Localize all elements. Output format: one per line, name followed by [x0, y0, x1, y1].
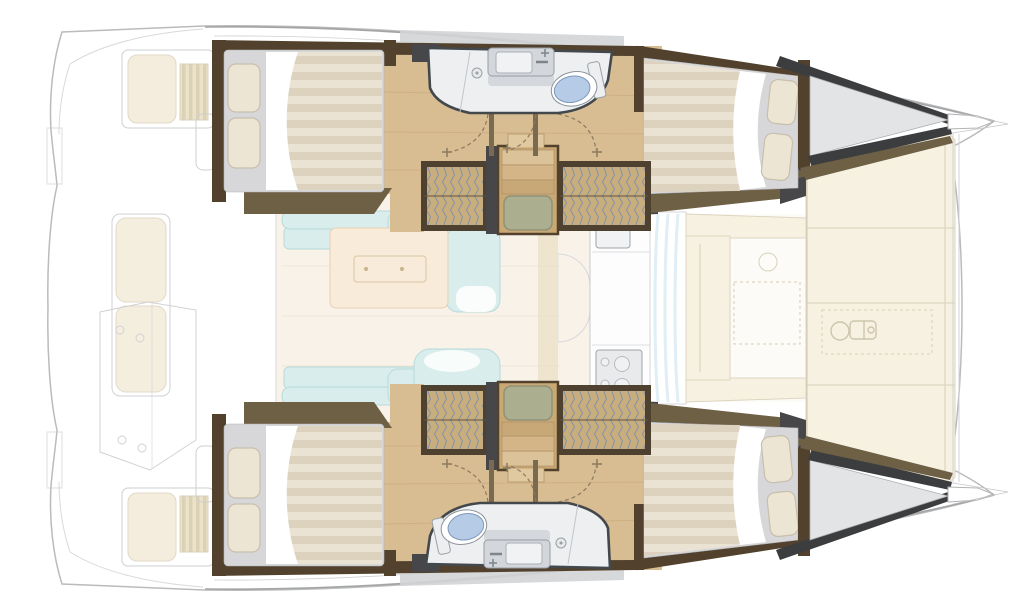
pillow [766, 79, 798, 126]
hull-sole-patch [390, 194, 424, 232]
companionway-stairs [486, 134, 558, 234]
shower-drain-hole [476, 72, 479, 75]
stair-landing [508, 134, 544, 148]
forward-cabin-wall-stub [634, 46, 644, 112]
pillow [228, 118, 260, 168]
floor-plan-page [0, 0, 1024, 616]
pillow [228, 64, 260, 112]
forward-seat-top [686, 214, 806, 238]
stairwell-wall [486, 146, 498, 234]
burner [601, 358, 609, 366]
stair-mat [504, 196, 552, 230]
sofa-armrest-pad [456, 286, 496, 312]
bed-duvet [644, 60, 740, 192]
transom-bench-cushion [116, 306, 166, 392]
teak-side-table [180, 64, 208, 120]
pillow [761, 133, 794, 182]
table-fitting [400, 267, 404, 271]
burner [615, 357, 630, 372]
starboard-shower-room [426, 503, 610, 568]
catamaran-floor-plan [0, 0, 1024, 616]
sun-pad-area [806, 134, 955, 482]
saloon-table [330, 228, 448, 308]
transom-bench-cushion [116, 218, 166, 302]
forward-seat-bottom [686, 378, 806, 402]
stair-step [502, 165, 554, 180]
cockpit-table-outline [759, 253, 777, 271]
stair-step [502, 180, 554, 194]
aft-cabin [224, 50, 384, 192]
forward-seat-left [686, 236, 730, 380]
port-shower-room [428, 48, 612, 113]
foredeck [806, 134, 955, 482]
forward-cabin [644, 58, 799, 194]
door-leaf [533, 112, 538, 156]
table-fitting [364, 267, 368, 271]
washbasin [496, 52, 532, 73]
stair-step [502, 150, 554, 165]
sofa-armrest-pad [424, 350, 480, 372]
wall-stub [384, 40, 396, 66]
door-leaf [489, 112, 494, 156]
forward-cockpit [686, 214, 806, 402]
seat-cushion [128, 55, 176, 123]
